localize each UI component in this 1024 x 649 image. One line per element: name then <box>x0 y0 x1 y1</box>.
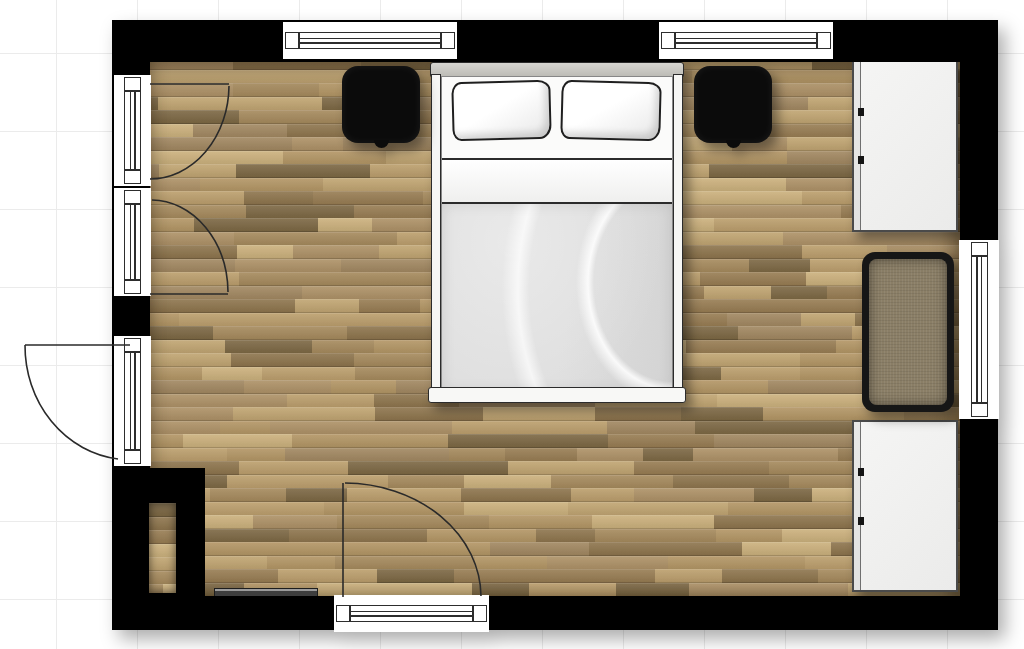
window-frame <box>971 256 988 403</box>
chimney-niche-shade <box>149 503 176 593</box>
wardrobe-handle <box>858 156 864 164</box>
window-pane-line <box>134 353 136 449</box>
wardrobe-door-edge <box>854 62 861 230</box>
wardrobe-door-edge <box>854 422 861 590</box>
bed-rail-right <box>673 74 683 392</box>
window-pane-line <box>130 353 132 449</box>
window-sill-box <box>285 32 299 49</box>
window-sill-box <box>124 190 141 204</box>
ottoman-bench[interactable] <box>862 252 954 412</box>
window-sill-box <box>336 605 350 622</box>
window-sill-box <box>971 242 988 256</box>
wardrobe-handle <box>858 108 864 116</box>
wall-bottom[interactable] <box>112 596 998 630</box>
bed-sheet-fold <box>442 158 672 204</box>
window-pane-line <box>976 257 978 402</box>
window-sill-box <box>661 32 675 49</box>
ottoman-cushion <box>869 259 947 405</box>
window-pane-line <box>130 92 132 169</box>
window-sill-box <box>441 32 455 49</box>
window-pane-line <box>134 205 136 279</box>
window-pane-line <box>351 611 472 613</box>
window-pane-line <box>300 38 440 40</box>
door-left-glass[interactable] <box>114 336 151 466</box>
pillow-right <box>560 80 662 142</box>
window-frame <box>124 91 141 170</box>
wall-top[interactable] <box>112 20 998 62</box>
window-pane-line <box>981 257 983 402</box>
window-top-left[interactable] <box>283 22 457 59</box>
window-pane-line <box>300 42 440 44</box>
window-right[interactable] <box>959 240 999 419</box>
window-top-right[interactable] <box>659 22 833 59</box>
nightstand-right[interactable] <box>694 66 772 143</box>
window-sill-box <box>817 32 831 49</box>
window-sill-box <box>473 605 487 622</box>
wardrobe-handle <box>858 468 864 476</box>
window-sill-box <box>124 77 141 91</box>
window-left-lower[interactable] <box>114 188 151 296</box>
window-left-upper[interactable] <box>114 75 151 186</box>
wardrobe-bottom-right[interactable] <box>852 420 958 592</box>
window-pane-line <box>676 42 816 44</box>
bed-duvet <box>442 204 672 391</box>
window-sill-box <box>971 403 988 417</box>
pillow-left <box>451 80 552 142</box>
window-sill-box <box>124 280 141 294</box>
window-sill-box <box>124 450 141 464</box>
window-sill-box <box>124 170 141 184</box>
wardrobe-handle <box>858 517 864 525</box>
window-frame <box>124 204 141 280</box>
wardrobe-top-right[interactable] <box>852 60 958 232</box>
building <box>0 0 1024 649</box>
double-bed[interactable] <box>428 62 686 403</box>
window-frame <box>124 352 141 450</box>
window-pane-line <box>134 92 136 169</box>
door-bottom-glass[interactable] <box>334 595 489 632</box>
window-pane-line <box>676 38 816 40</box>
window-pane-line <box>130 205 132 279</box>
window-frame <box>350 605 473 622</box>
plan-canvas <box>0 0 1024 649</box>
bed-rail-left <box>431 74 441 392</box>
nightstand-left[interactable] <box>342 66 420 143</box>
window-frame <box>675 32 817 49</box>
window-pane-line <box>351 615 472 617</box>
bed-footboard <box>428 387 686 403</box>
window-sill-box <box>124 338 141 352</box>
window-frame <box>299 32 441 49</box>
